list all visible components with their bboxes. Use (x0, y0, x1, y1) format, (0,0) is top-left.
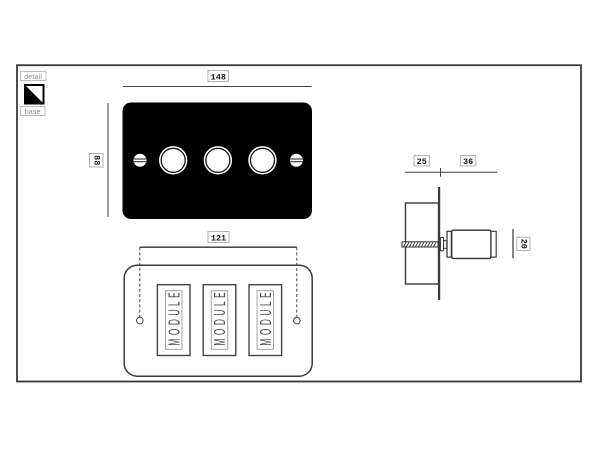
svg-text:25: 25 (417, 157, 427, 167)
svg-text:MODULE: MODULE (210, 289, 229, 346)
svg-text:base: base (25, 109, 41, 116)
svg-text:detail: detail (24, 74, 42, 81)
svg-text:MODULE: MODULE (164, 289, 183, 346)
svg-text:36: 36 (463, 157, 473, 167)
svg-text:148: 148 (211, 73, 226, 83)
svg-text:20: 20 (519, 239, 529, 249)
svg-text:88: 88 (92, 155, 102, 165)
svg-text:MODULE: MODULE (256, 289, 275, 346)
svg-text:121: 121 (211, 234, 226, 244)
